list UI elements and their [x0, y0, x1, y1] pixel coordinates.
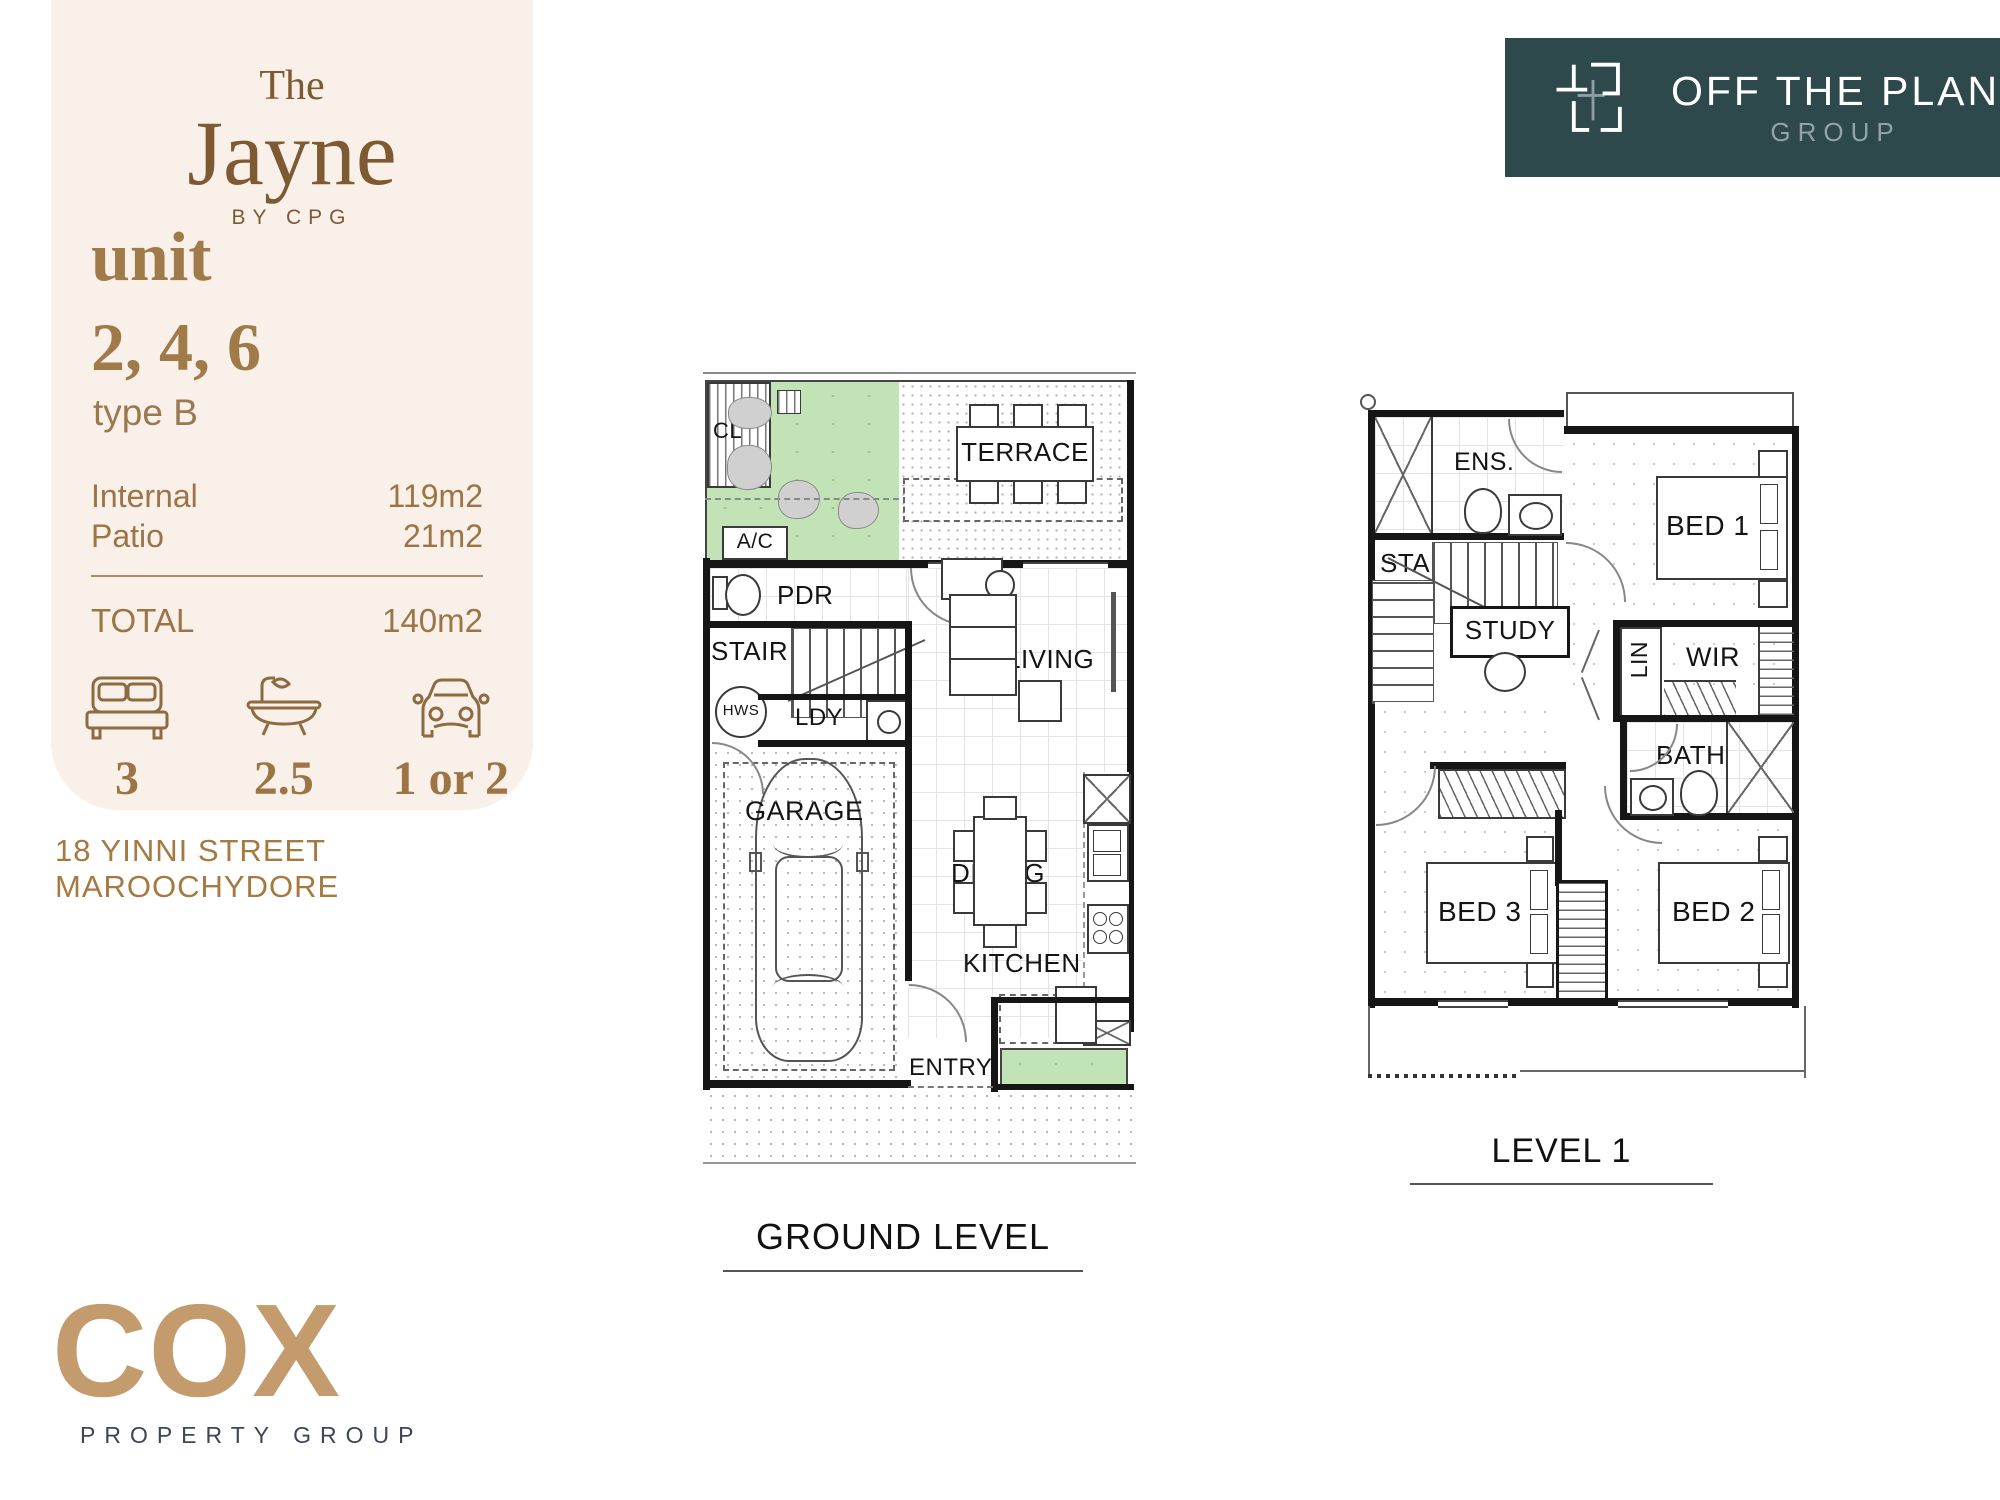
burner	[1093, 912, 1107, 926]
total-row: TOTAL 140m2	[91, 602, 483, 640]
pantry-unit	[1083, 774, 1131, 824]
ac-unit: A/C	[722, 526, 788, 560]
pillow	[1760, 530, 1778, 570]
jayne-brand-logo: The Jayne BY CPG	[51, 62, 533, 230]
feature-carparks: 1 or 2	[393, 672, 509, 806]
basin-bowl	[1519, 502, 1553, 530]
sofa-fixture	[949, 594, 1017, 696]
window	[1618, 1000, 1728, 1008]
sink-bowl	[1093, 854, 1121, 876]
ground-level-floorplan: CL TERRACE A/C PDR STAIR HWS LDY	[703, 370, 1136, 1170]
wall	[1564, 426, 1799, 434]
terrace-table: TERRACE	[956, 426, 1094, 482]
wall	[758, 740, 908, 747]
robe	[1438, 769, 1566, 819]
wall	[1792, 426, 1799, 1008]
chair	[969, 480, 999, 504]
entry-threshold	[908, 1086, 993, 1088]
burner	[1109, 930, 1123, 944]
wall	[1555, 810, 1562, 886]
car-rear-window	[773, 974, 843, 1000]
chair	[1025, 830, 1047, 862]
room-label-wir: WIR	[1686, 642, 1740, 673]
shower-fixture	[1726, 722, 1794, 813]
wardrobe-shelf	[1664, 680, 1736, 717]
otp-title: OFF THE PLAN	[1671, 68, 2000, 115]
car-windshield	[773, 830, 843, 858]
cox-property-group-logo: COX PROPERTY GROUP	[52, 1296, 422, 1449]
wall	[1368, 998, 1799, 1006]
parapet-line	[1804, 1006, 1806, 1078]
chair	[953, 830, 975, 862]
room-label-bed3: BED 3	[1438, 896, 1521, 928]
brochure-page: { "side_panel": { "bg": "#f9f1e9", "bran…	[0, 0, 2000, 1500]
bedside-table	[1758, 962, 1788, 988]
room-label-ac: A/C	[737, 530, 774, 553]
tub-basin	[877, 710, 901, 734]
unit-type: type B	[93, 392, 198, 434]
bathrooms-count: 2.5	[236, 751, 332, 806]
level1-floorplan: ENS. BED 1 STAIR STUDY LIN WIR BATH	[1368, 392, 1808, 1092]
cooktop-fixture	[1087, 904, 1129, 954]
chair	[1025, 882, 1047, 914]
parapet-dotted-line	[1368, 1074, 1520, 1078]
chair	[983, 796, 1017, 820]
wall	[1368, 410, 1564, 417]
car-mirror	[749, 852, 762, 872]
coffee-table	[1018, 680, 1062, 722]
parapet-line	[1520, 1070, 1806, 1072]
shower-fixture	[1375, 417, 1433, 533]
room-label-bed1: BED 1	[1666, 510, 1749, 542]
bedrooms-count: 3	[79, 751, 175, 806]
bath-icon	[236, 731, 332, 748]
off-the-plan-logo: OFF THE PLAN GROUP	[1505, 38, 2000, 177]
wall	[1368, 410, 1375, 1008]
area-value: 21m2	[403, 518, 483, 555]
wall	[703, 1080, 911, 1088]
otp-subtitle: GROUP	[1671, 117, 2000, 148]
room-label-pdr: PDR	[777, 580, 833, 611]
site-boundary-line	[703, 1162, 1136, 1164]
chair	[1013, 404, 1043, 428]
pillow	[1760, 484, 1778, 524]
wall	[703, 558, 710, 1090]
area-row-internal: Internal 119m2	[91, 478, 483, 515]
room-label-living: LIVING	[1006, 644, 1094, 675]
carparks-count: 1 or 2	[393, 751, 509, 806]
bed-icon	[79, 731, 175, 748]
total-value: 140m2	[382, 602, 483, 640]
unit-word: unit	[91, 218, 212, 298]
desk-chair	[1484, 652, 1526, 692]
toilet-fixture	[1464, 488, 1502, 534]
burner	[1093, 930, 1107, 944]
chair	[1057, 480, 1087, 504]
room-label-kitchen: KITCHEN	[963, 948, 1081, 979]
wall	[1613, 620, 1620, 722]
wall	[905, 621, 912, 981]
room-label-bed2: BED 2	[1672, 896, 1755, 928]
bedside-table	[1758, 580, 1788, 608]
chair	[969, 404, 999, 428]
hatch-square	[777, 390, 801, 414]
kitchen-sink	[1087, 824, 1129, 882]
level1-title: LEVEL 1	[1410, 1132, 1713, 1185]
room-label-stair: STAIR	[711, 636, 788, 667]
room-label-terrace: TERRACE	[961, 437, 1089, 467]
study-nook: STUDY	[1450, 606, 1570, 658]
sink-bowl	[1093, 830, 1121, 852]
window	[1438, 1000, 1508, 1008]
basin-fixture	[1508, 494, 1562, 536]
room-label-study: STUDY	[1465, 615, 1556, 645]
feature-icons-row: 3 2.5	[79, 672, 509, 806]
wall	[991, 997, 1130, 1003]
bedside-table	[1758, 836, 1788, 862]
unit-info-panel: The Jayne BY CPG unit 2, 4, 6 type B Int…	[51, 0, 533, 810]
toilet-fixture	[725, 574, 761, 616]
room-label-ldy: LDY	[795, 704, 843, 732]
parapet-line	[1368, 1006, 1370, 1078]
wardrobe	[1556, 880, 1608, 1004]
room-label-garage: GARAGE	[745, 796, 864, 827]
wardrobe-rail	[1758, 627, 1794, 715]
room-label-hws: HWS	[723, 702, 760, 719]
stair-treads	[1372, 580, 1434, 704]
survey-marker	[1360, 394, 1376, 410]
divider	[91, 575, 483, 577]
chair	[953, 882, 975, 914]
room-label-lin: LIN	[1626, 641, 1653, 678]
pillow	[1762, 914, 1780, 954]
pillow	[1530, 914, 1548, 954]
pillow	[1762, 870, 1780, 910]
feature-bedrooms: 3	[79, 672, 175, 806]
unit-numbers: 2, 4, 6	[91, 308, 261, 387]
wall	[1620, 715, 1792, 722]
cox-wordmark: COX	[52, 1296, 422, 1406]
ground-level-title: GROUND LEVEL	[723, 1216, 1083, 1272]
total-label: TOTAL	[91, 602, 194, 640]
chair	[1013, 480, 1043, 504]
setback-dashed-line	[705, 498, 899, 500]
area-label: Patio	[91, 518, 164, 555]
sofa-cushion-line	[951, 658, 1015, 660]
off-the-plan-text: OFF THE PLAN GROUP	[1671, 68, 2000, 148]
feature-bathrooms: 2.5	[236, 672, 332, 806]
car-roof	[775, 856, 843, 982]
chair	[983, 924, 1017, 948]
linen-closet: LIN	[1620, 627, 1662, 719]
dining-table	[973, 816, 1027, 926]
chair	[1057, 404, 1087, 428]
laundry-tub	[866, 700, 910, 744]
car-icon	[403, 731, 499, 748]
cupboard	[1055, 986, 1097, 1044]
area-value: 119m2	[388, 478, 483, 515]
brand-name: Jayne	[51, 110, 533, 196]
room-label-ens: ENS.	[1454, 448, 1514, 477]
room-label-entry: ENTRY	[909, 1054, 992, 1082]
driveway-area	[705, 1090, 1134, 1160]
site-boundary-line	[703, 372, 1136, 374]
wall	[1430, 762, 1566, 769]
burner	[1109, 912, 1123, 926]
car-mirror	[856, 852, 869, 872]
cox-tagline: PROPERTY GROUP	[80, 1422, 422, 1449]
off-the-plan-mark-icon	[1545, 57, 1641, 158]
property-address: 18 YINNI STREET MAROOCHYDORE	[55, 833, 555, 905]
bedside-table	[1758, 450, 1788, 478]
sofa-cushion-line	[951, 626, 1015, 628]
area-label: Internal	[91, 478, 198, 515]
tv-unit	[1111, 592, 1116, 692]
bedside-table	[1526, 836, 1554, 862]
bedside-table	[1526, 962, 1554, 988]
toilet-fixture	[1680, 770, 1718, 816]
wall	[703, 621, 908, 628]
wall	[1613, 620, 1792, 627]
pillow	[1530, 870, 1548, 910]
area-row-patio: Patio 21m2	[91, 518, 483, 555]
